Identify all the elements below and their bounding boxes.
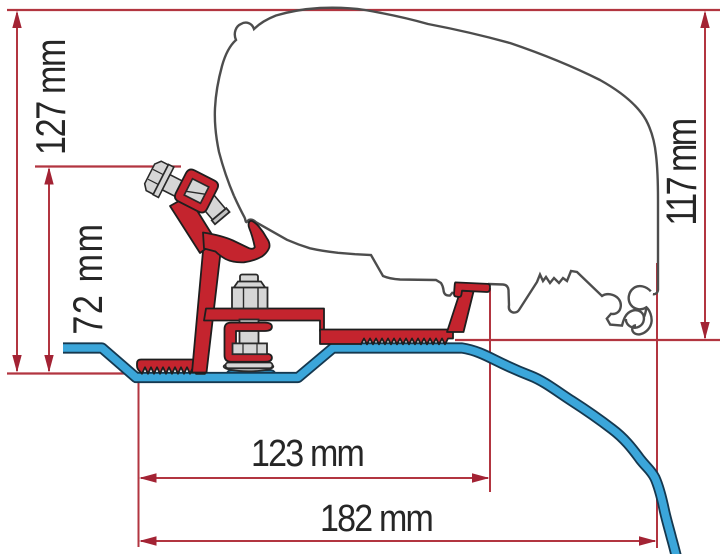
svg-text:123 mm: 123 mm bbox=[251, 431, 363, 474]
svg-text:72 mm: 72 mm bbox=[66, 222, 112, 334]
svg-text:182 mm: 182 mm bbox=[320, 496, 432, 539]
svg-text:117 mm: 117 mm bbox=[658, 120, 705, 226]
svg-text:127 mm: 127 mm bbox=[29, 40, 75, 155]
